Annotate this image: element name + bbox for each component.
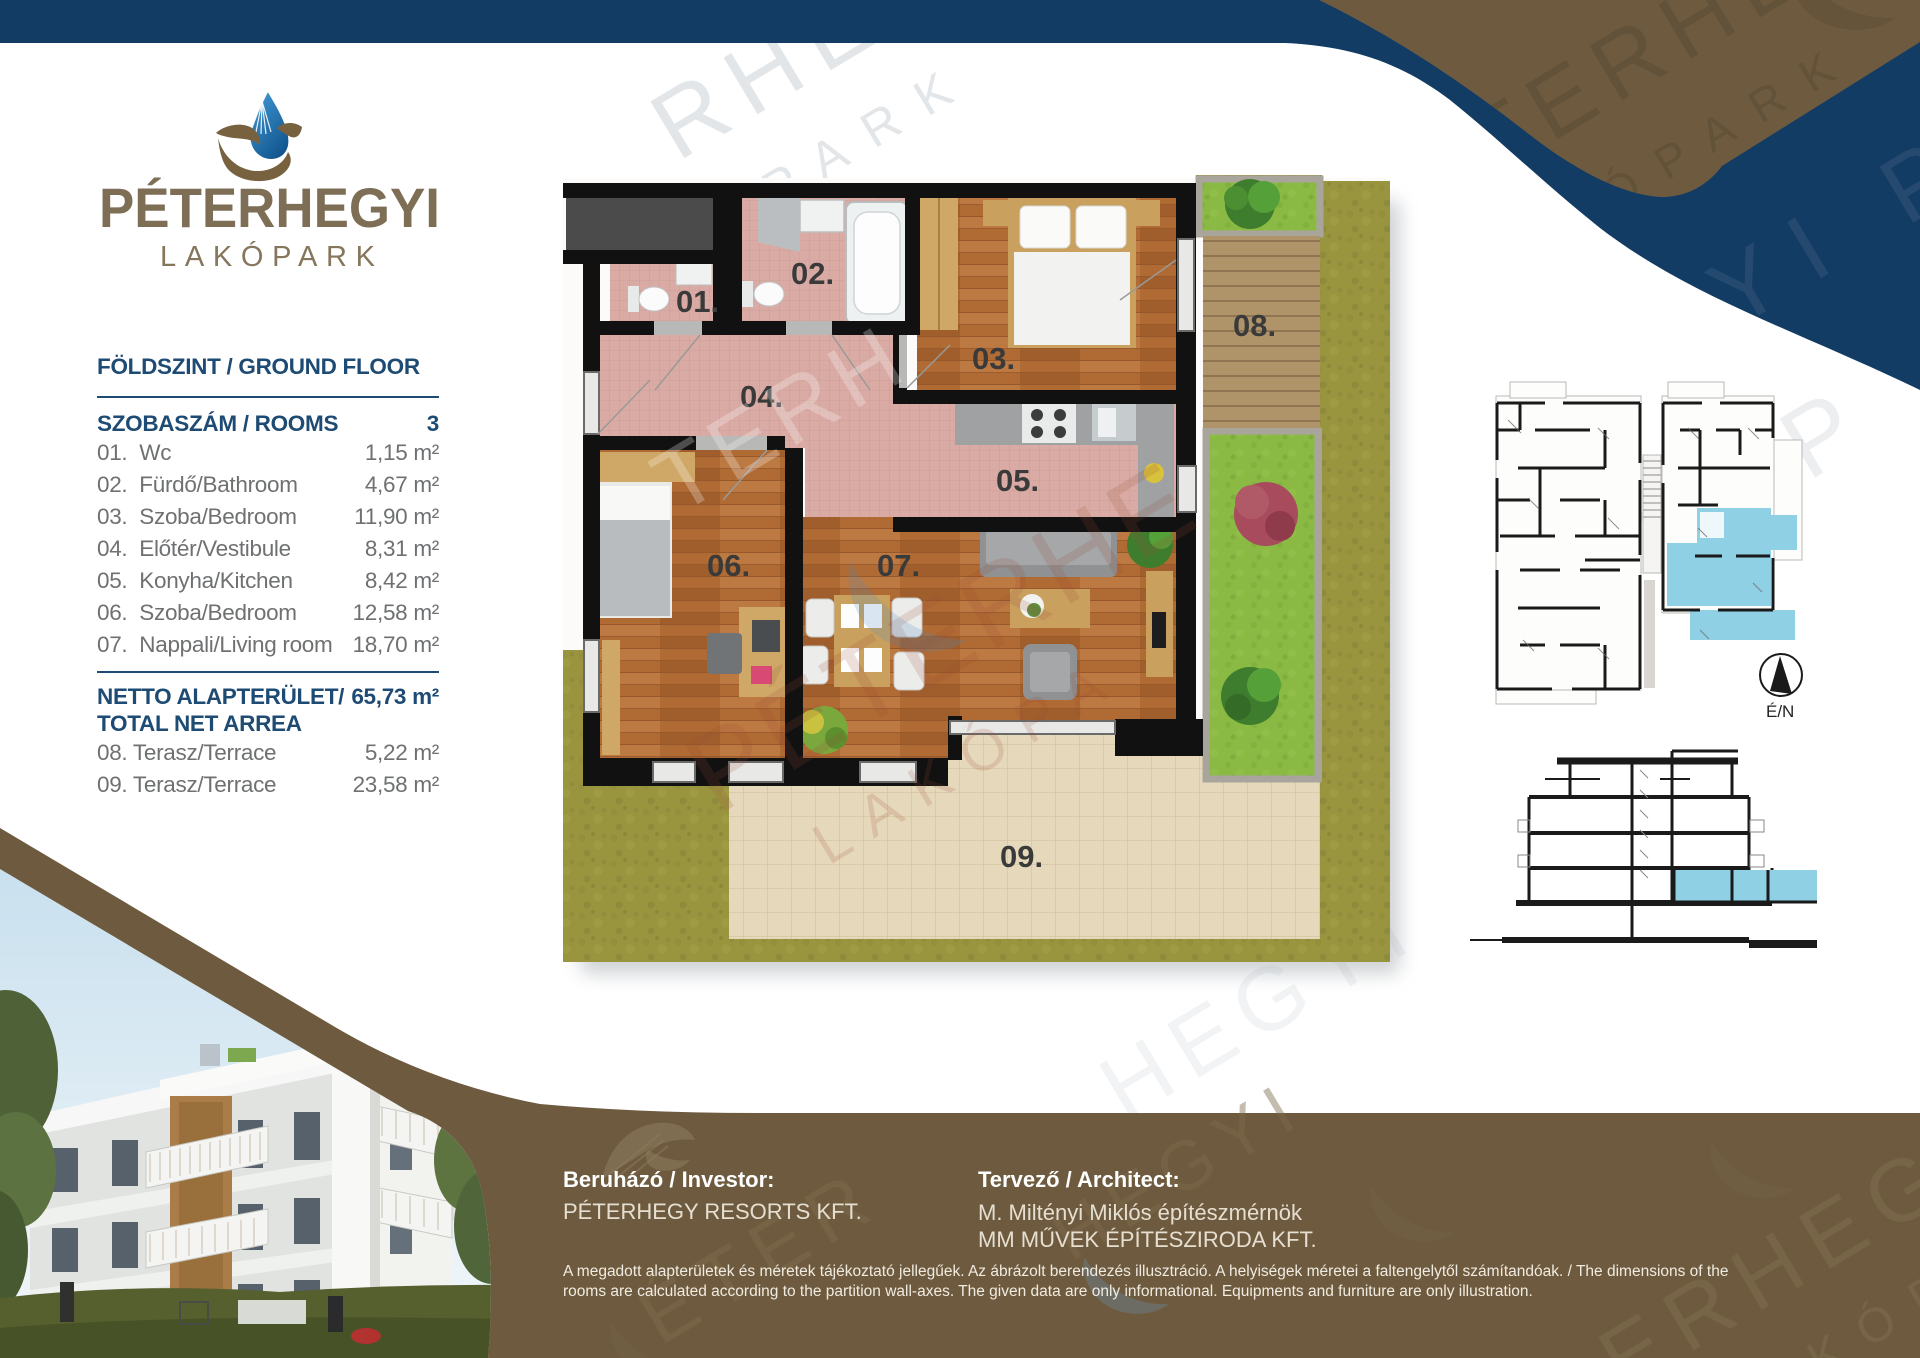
svg-text:É/N: É/N <box>1766 702 1794 721</box>
